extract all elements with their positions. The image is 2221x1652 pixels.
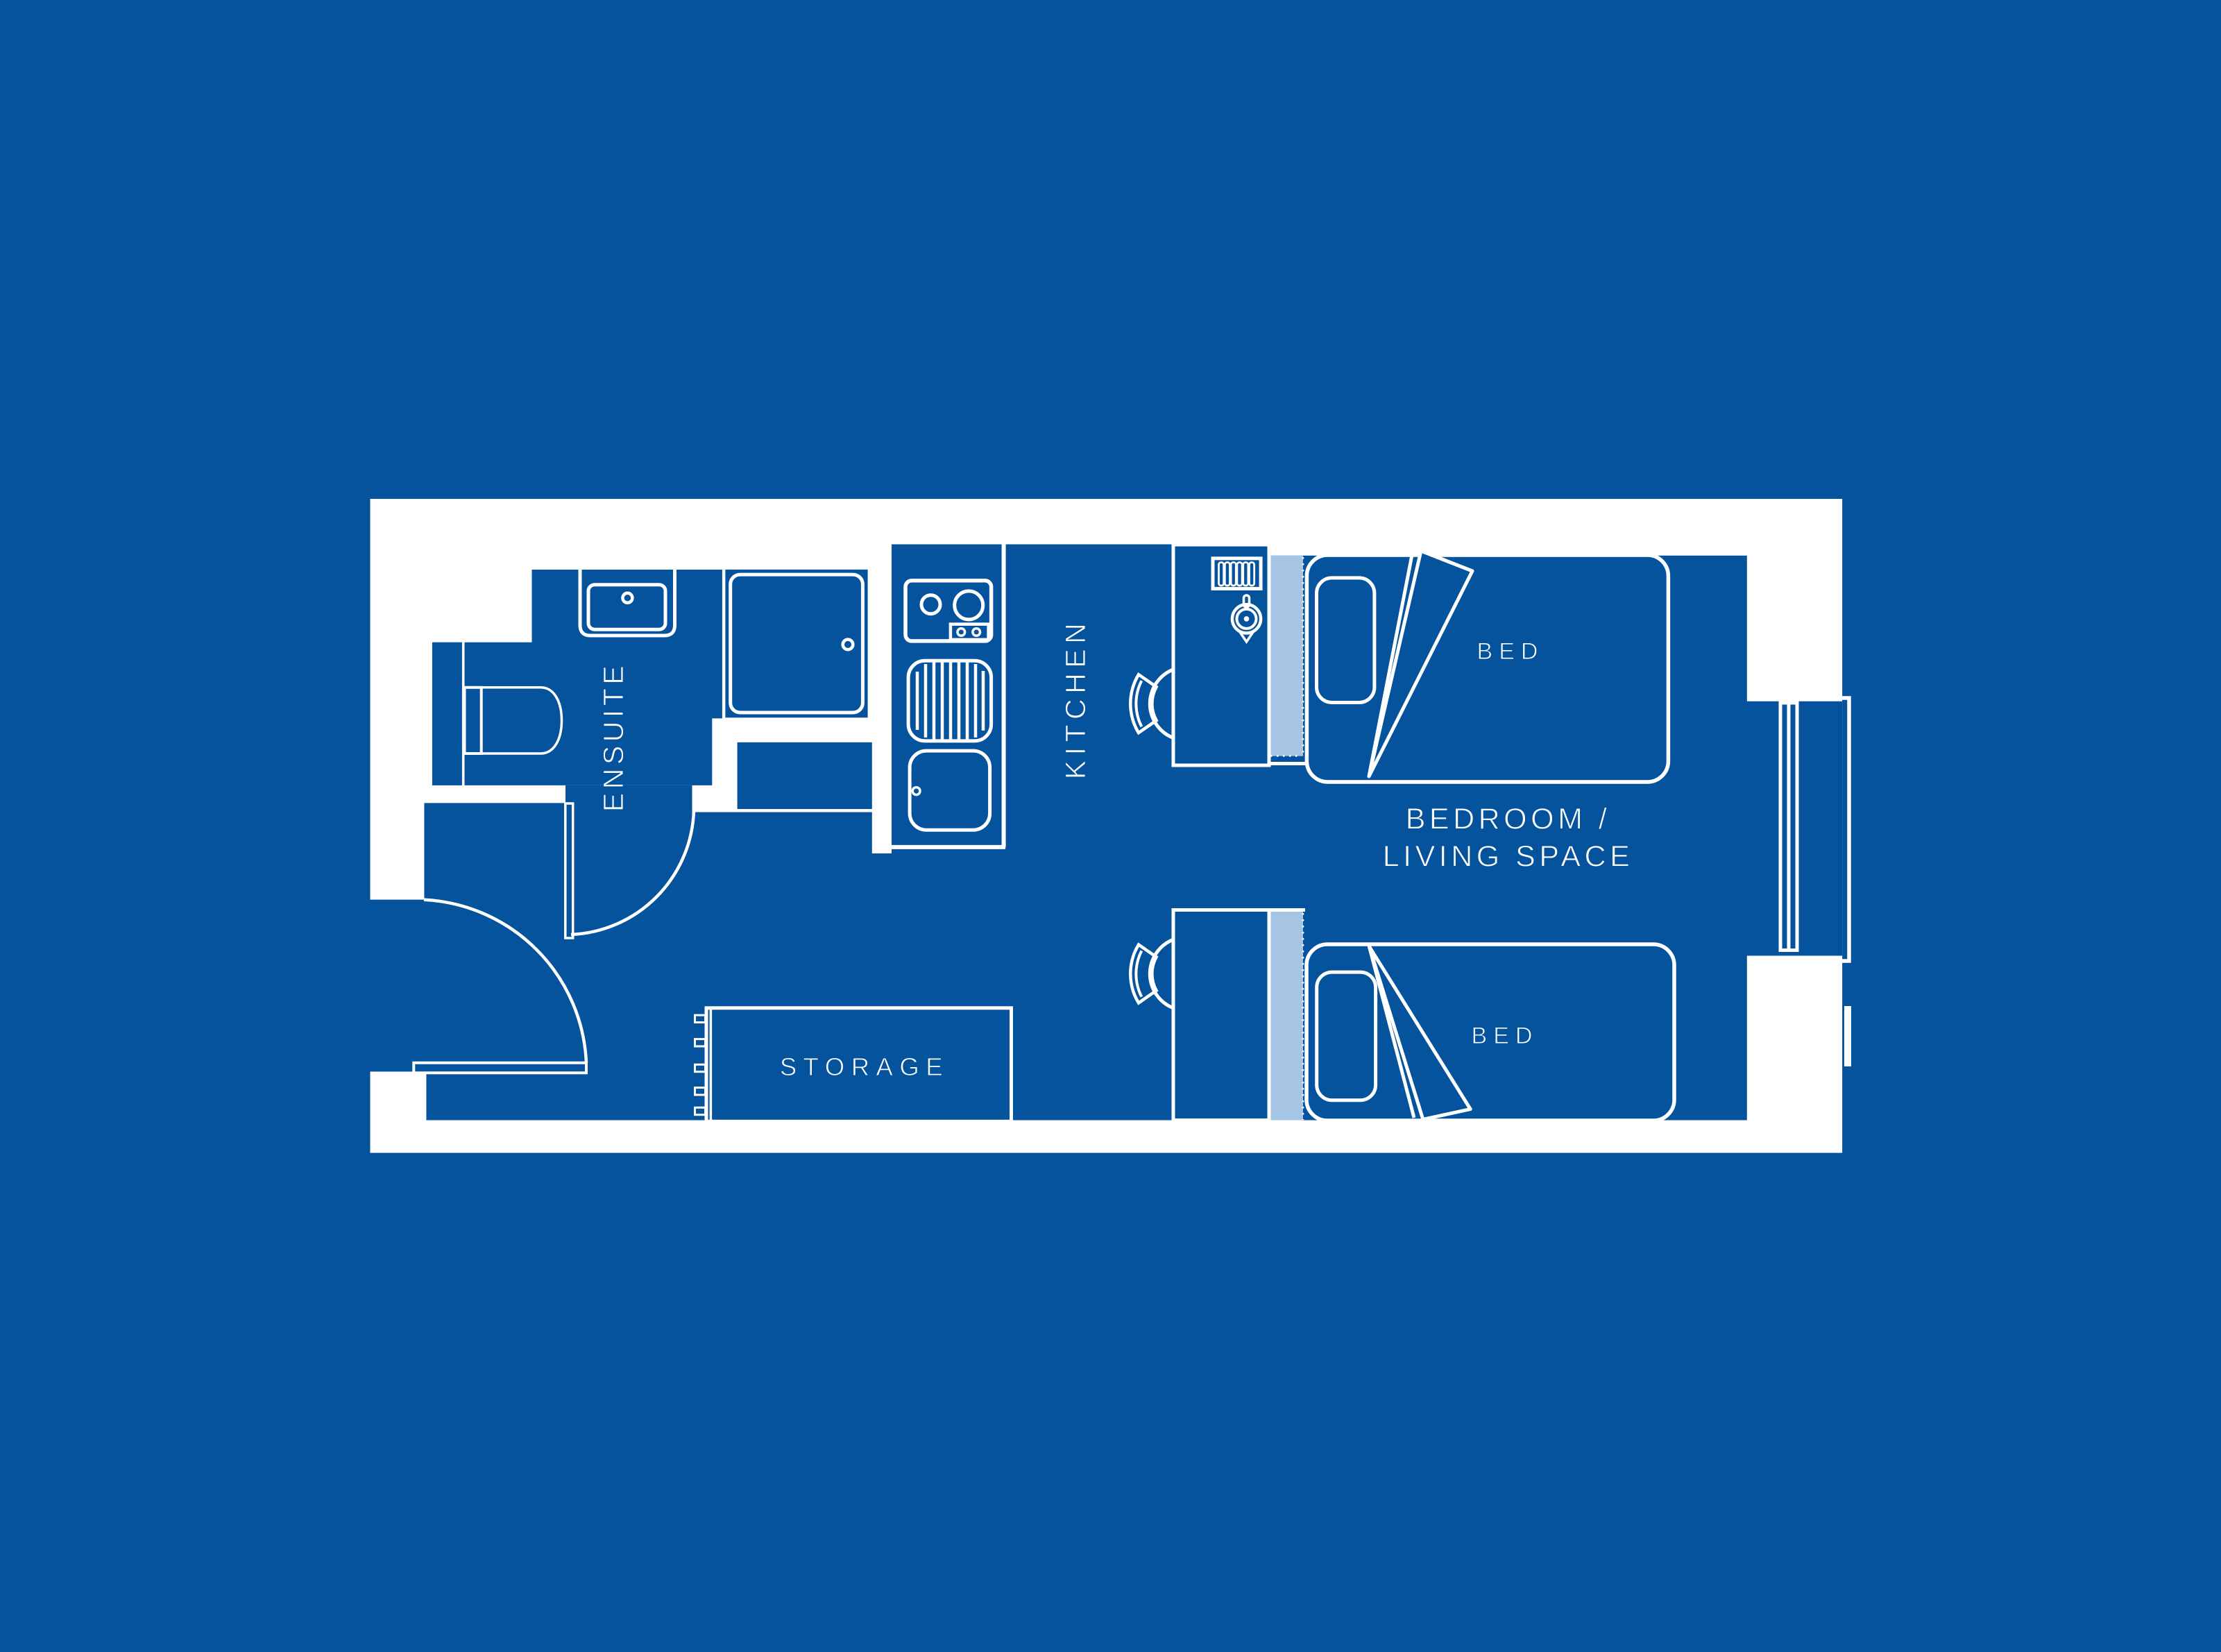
svg-text:KITCHEN: KITCHEN: [1060, 618, 1091, 779]
svg-text:BED: BED: [1472, 1023, 1539, 1049]
svg-text:ENSUITE: ENSUITE: [597, 662, 629, 812]
svg-text:LIVING SPACE: LIVING SPACE: [1383, 840, 1634, 874]
svg-text:STORAGE: STORAGE: [780, 1053, 949, 1081]
svg-text:BED: BED: [1477, 638, 1545, 665]
svg-text:BEDROOM /: BEDROOM /: [1406, 803, 1611, 836]
